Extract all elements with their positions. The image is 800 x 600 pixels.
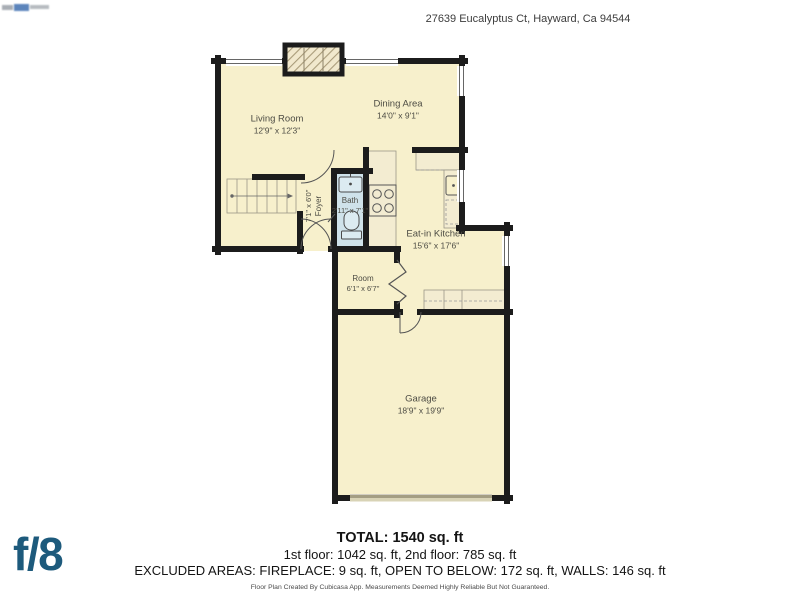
excluded-areas-line: EXCLUDED AREAS: FIREPLACE: 9 sq. ft, OPE… <box>20 563 780 578</box>
room-label-kitchen: Eat-in Kitchen 15'6" x 17'6" <box>406 228 465 251</box>
window-living-top <box>226 56 282 66</box>
window-dining-top <box>346 56 398 66</box>
disclaimer-text: Floor Plan Created By Cubicasa App. Meas… <box>20 584 780 591</box>
staircase <box>227 179 296 213</box>
room-label-living: Living Room 12'9" x 12'3" <box>251 113 304 136</box>
fireplace-icon <box>285 45 342 74</box>
room-label-dining: Dining Area 14'0" x 9'1" <box>373 98 422 121</box>
window-kitchen-right <box>457 170 467 202</box>
room-label-garage: Garage 18'9" x 19'9" <box>398 393 445 416</box>
stove-icon <box>369 185 396 216</box>
total-area: TOTAL: 1540 sq. ft <box>20 530 780 546</box>
floorplan-drawing <box>0 0 800 600</box>
garage-door <box>350 494 492 502</box>
room-label-foyer: 7'1" x 6'0" Foyer <box>304 190 324 223</box>
area-summary: TOTAL: 1540 sq. ft 1st floor: 1042 sq. f… <box>20 530 780 591</box>
floor-areas-line: 1st floor: 1042 sq. ft, 2nd floor: 785 s… <box>20 547 780 562</box>
floorplan-page: 27639 Eucalyptus Ct, Hayward, Ca 94544 <box>0 0 800 600</box>
room-label-bath: Bath 2'11" x 7'1" <box>332 196 368 216</box>
room-label-room: Room 6'1" x 6'7" <box>347 274 380 294</box>
window-nook-right <box>502 236 512 266</box>
window-dining-right <box>457 66 467 96</box>
